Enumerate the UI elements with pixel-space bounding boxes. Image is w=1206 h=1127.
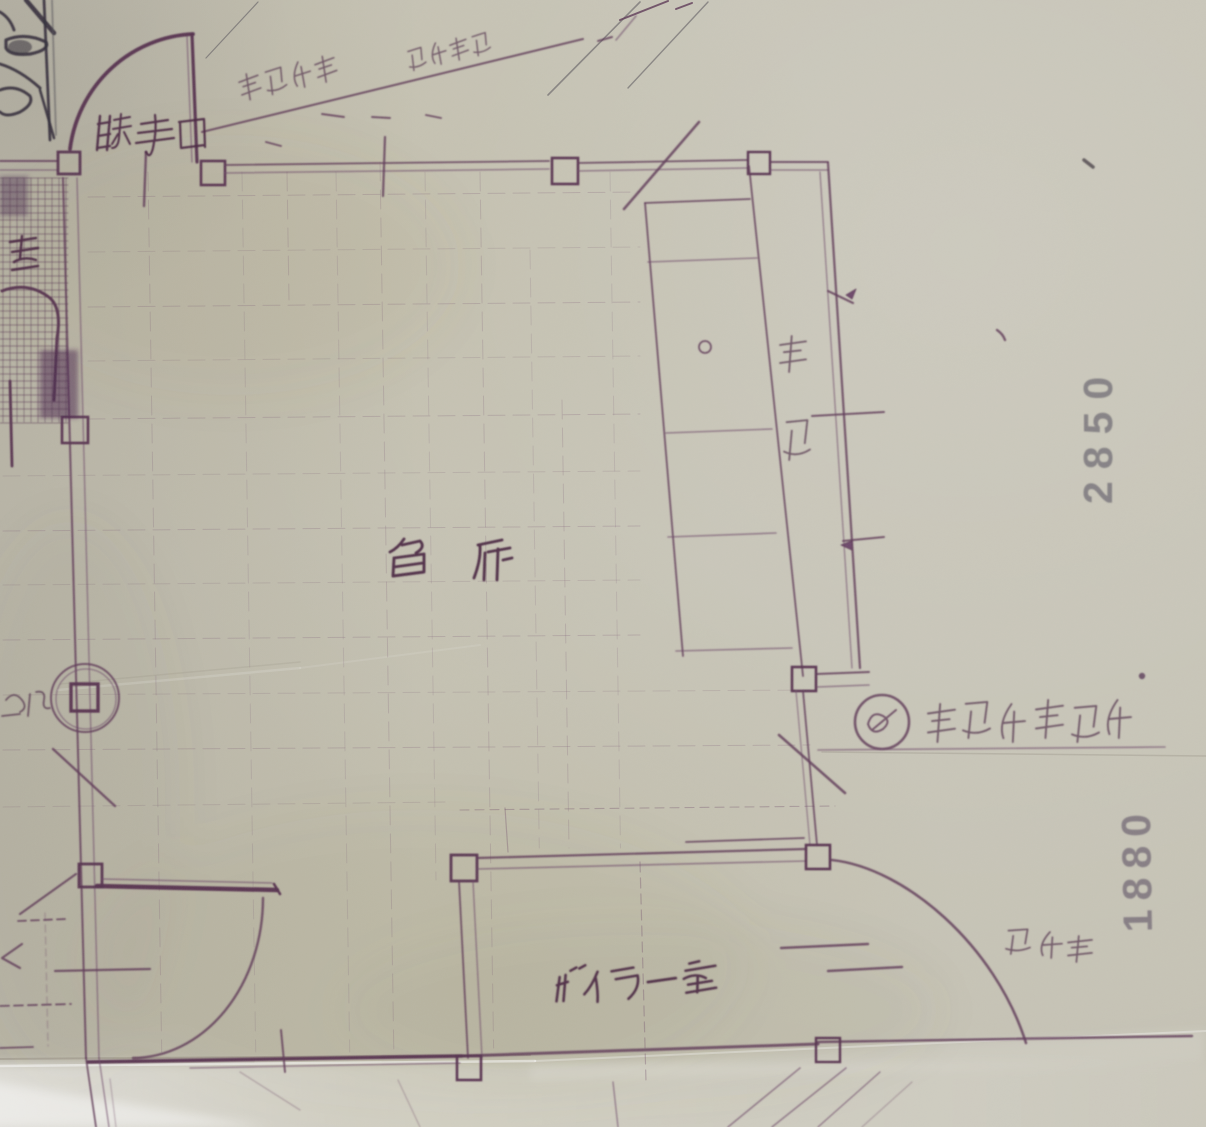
svg-text:2850: 2850	[1075, 365, 1121, 504]
svg-text:1880: 1880	[1113, 805, 1161, 933]
